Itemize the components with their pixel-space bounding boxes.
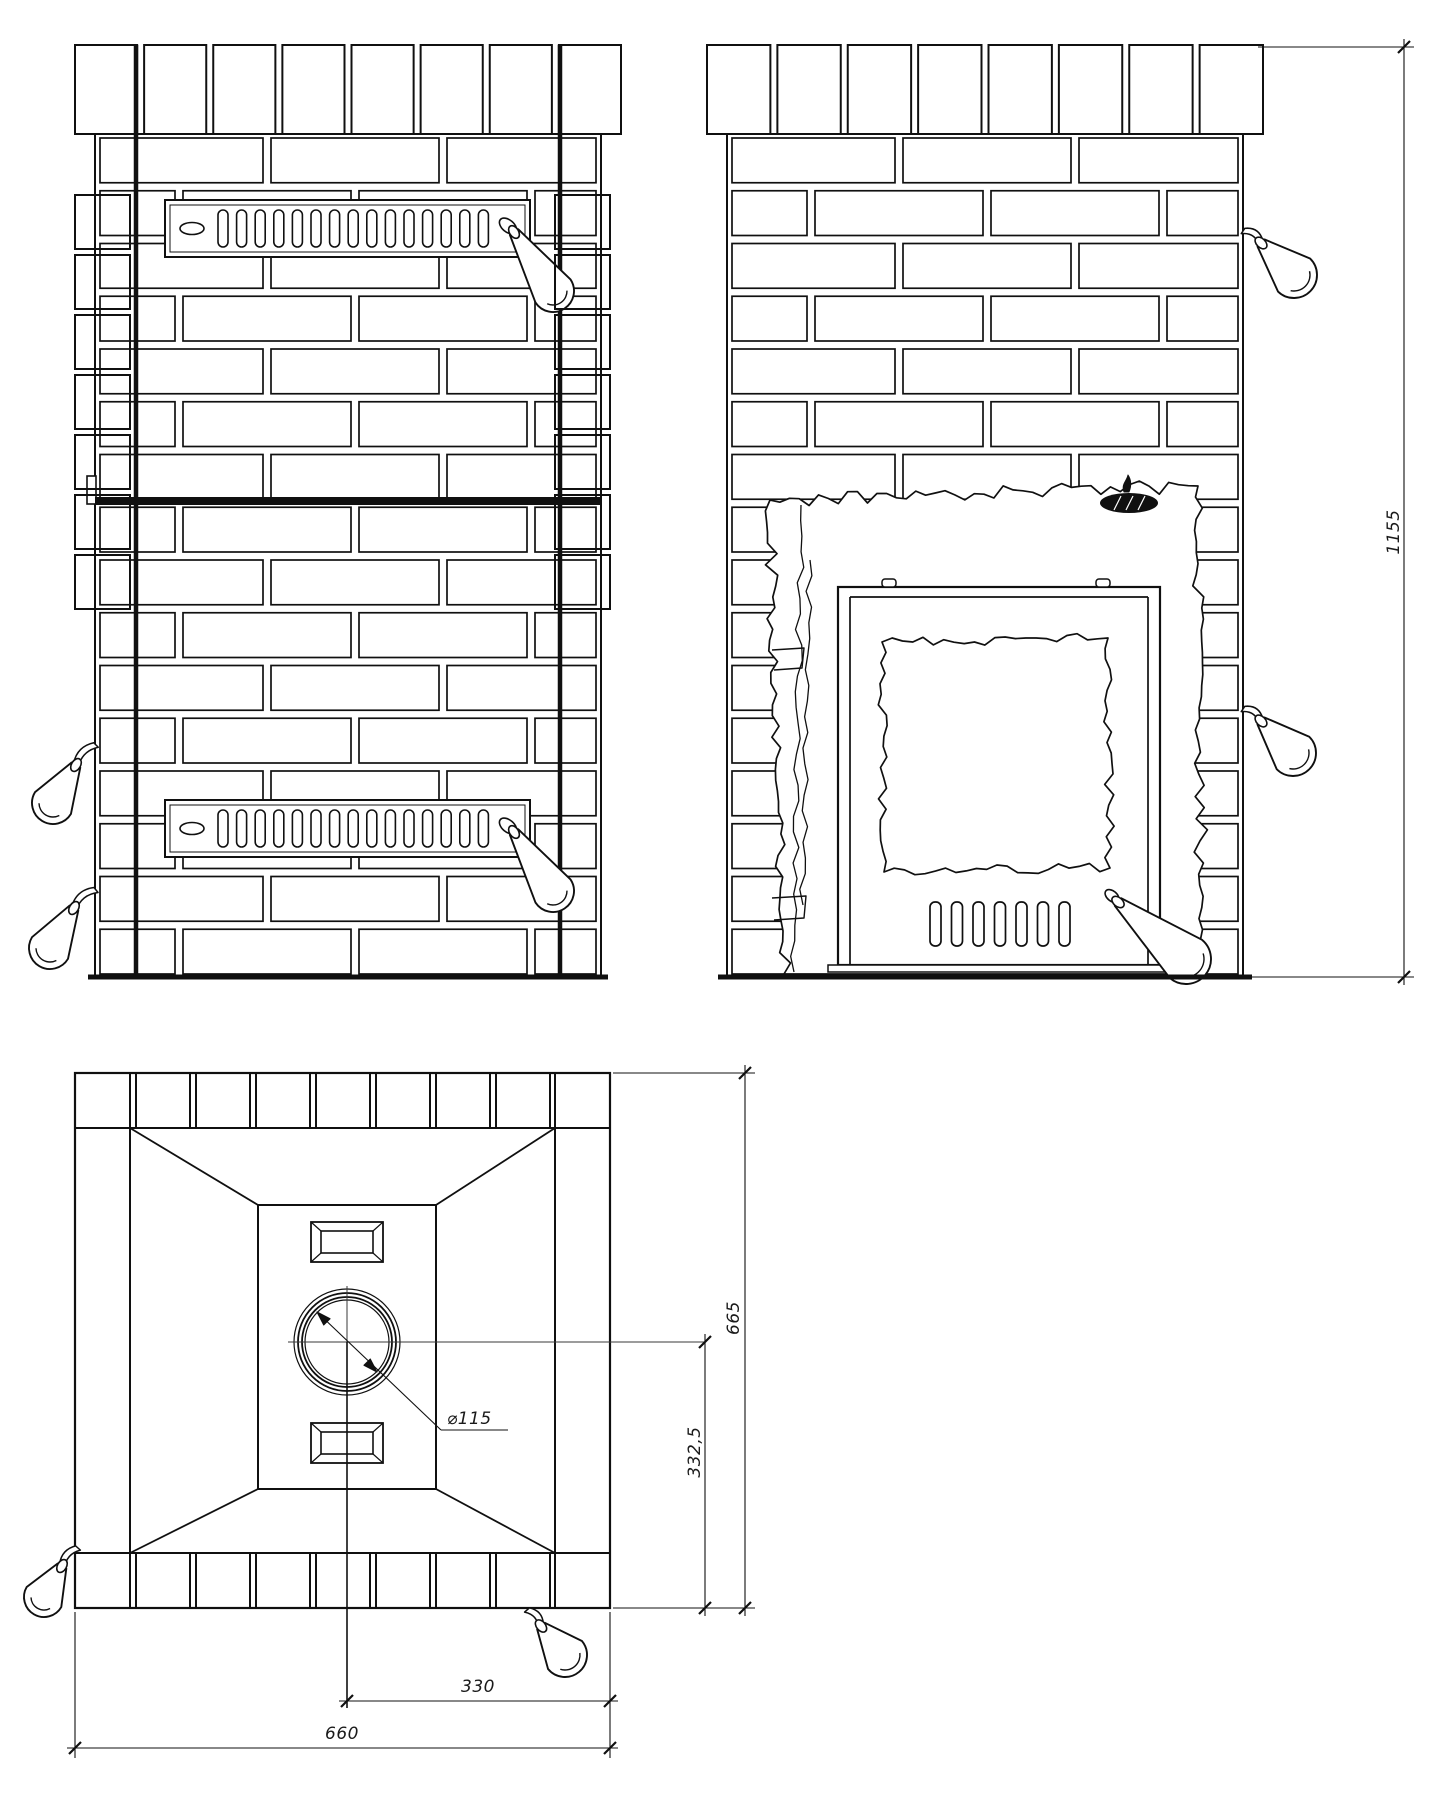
stove-drawing-canvas: 1155 665 332,5 330 660 ⌀115 bbox=[0, 0, 1440, 1800]
front-elevation-view bbox=[29, 45, 621, 978]
half-width-dimension: 330 bbox=[461, 1677, 495, 1697]
air-grille bbox=[165, 200, 530, 257]
door-glass bbox=[878, 634, 1114, 875]
overall-depth-dimension: 665 bbox=[724, 1301, 744, 1335]
brand-logo-icon bbox=[1100, 493, 1158, 513]
firebox-door bbox=[828, 579, 1170, 975]
overall-height-dimension: 1155 bbox=[1384, 509, 1404, 554]
damper-band bbox=[95, 497, 601, 505]
drawing-sheet: 1155 665 332,5 330 660 ⌀115 bbox=[0, 0, 1440, 1800]
flue-offset-dimension: 332,5 bbox=[685, 1426, 705, 1477]
overall-width-dimension: 660 bbox=[325, 1724, 359, 1744]
flue-diameter-dimension: ⌀115 bbox=[447, 1409, 492, 1429]
air-grille bbox=[165, 800, 530, 857]
door-hinge bbox=[1096, 579, 1110, 587]
cutaway-elevation-view bbox=[707, 45, 1317, 984]
door-hinge bbox=[882, 579, 896, 587]
